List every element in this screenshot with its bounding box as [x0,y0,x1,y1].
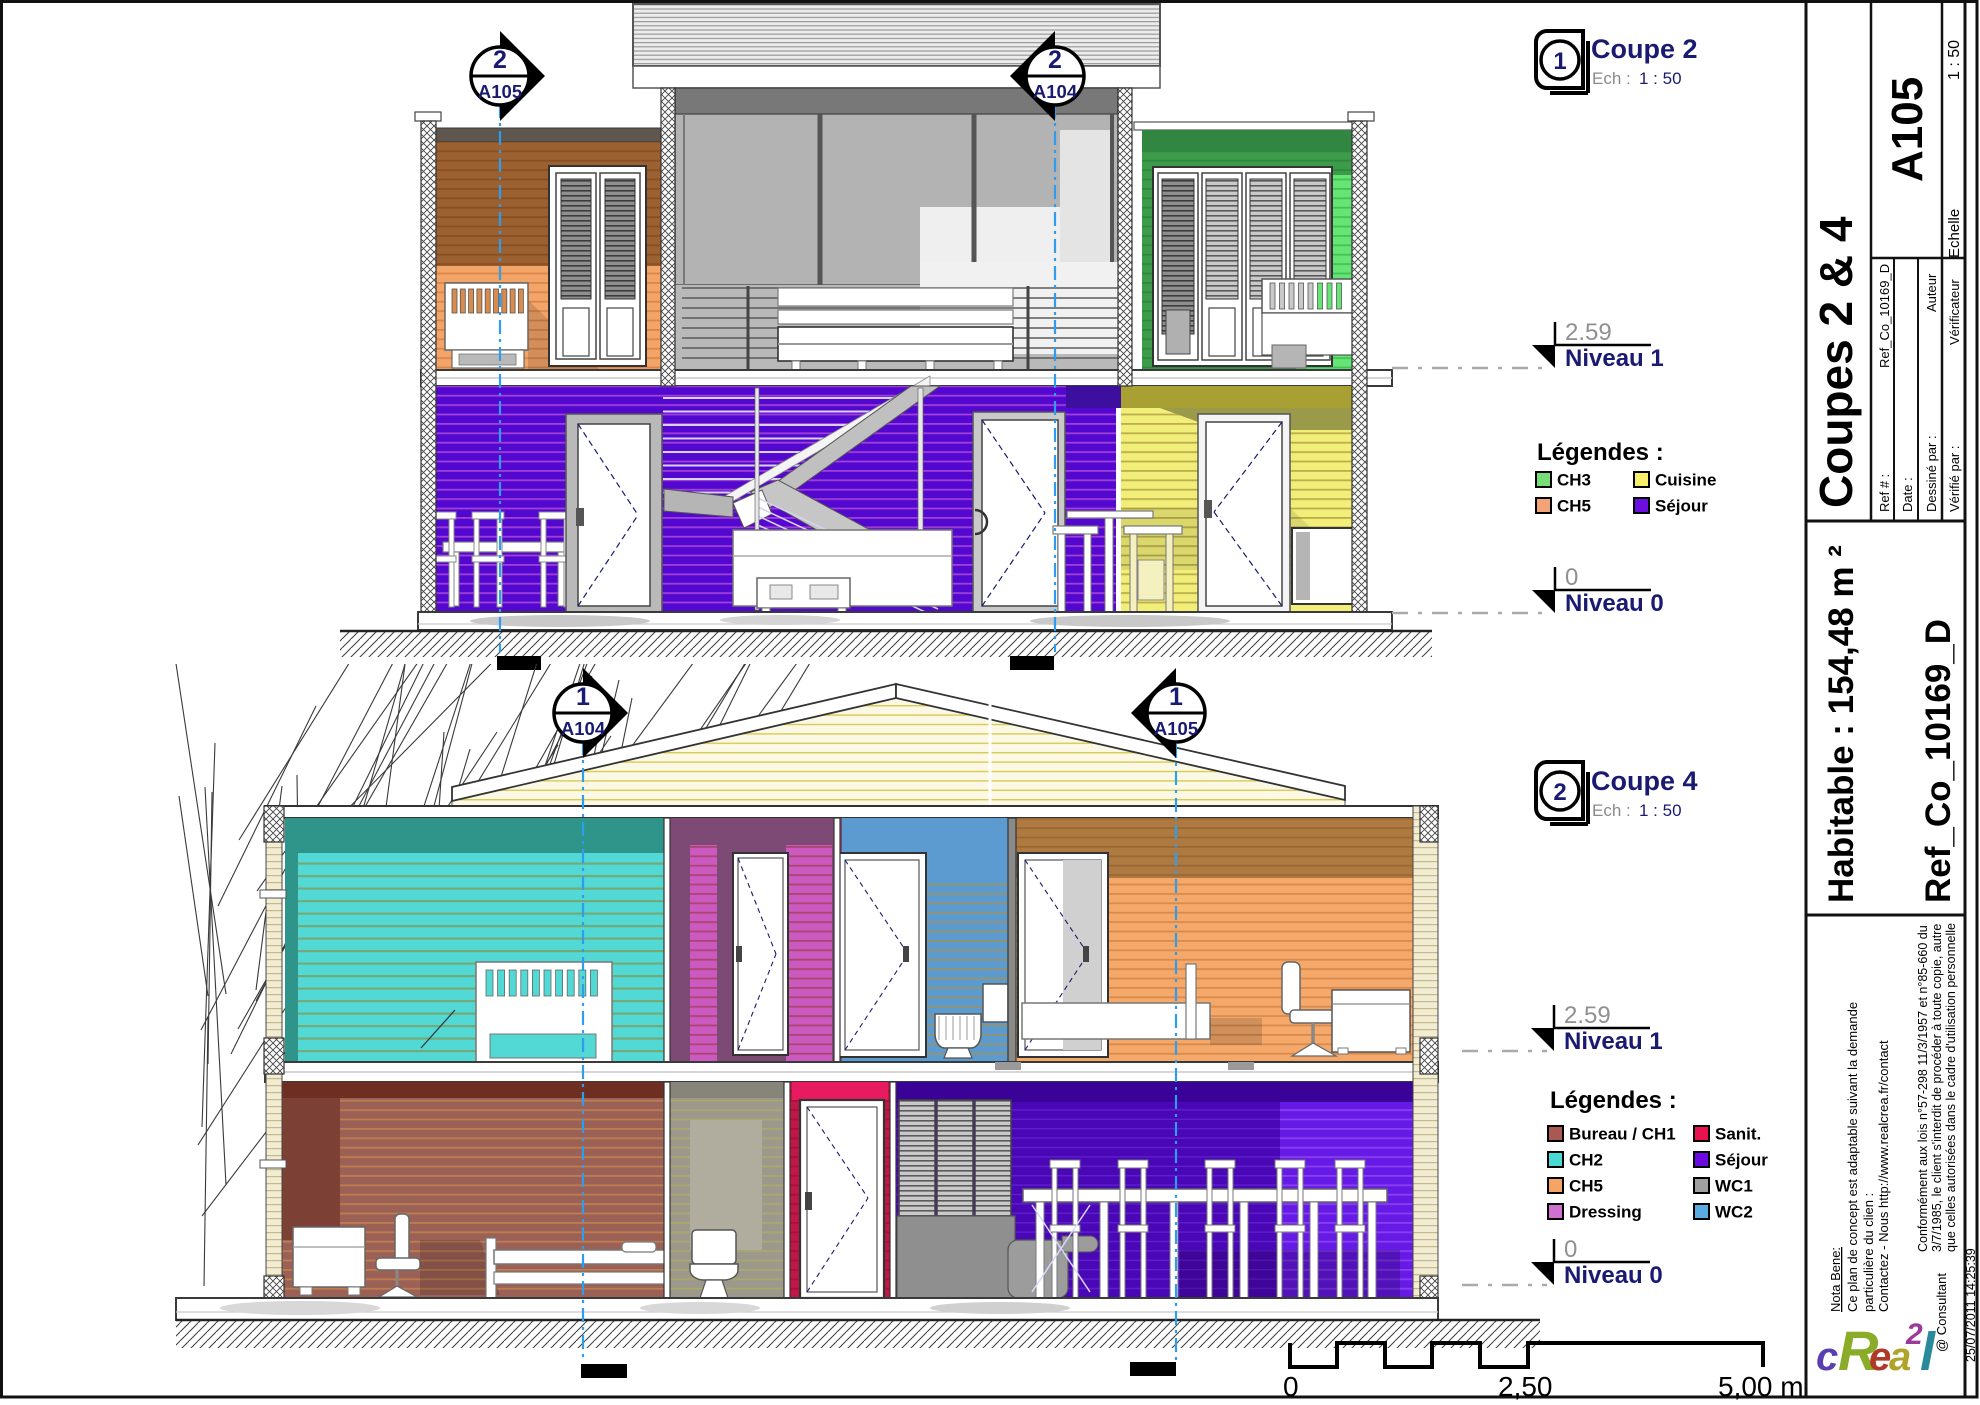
svg-text:Bureau / CH1: Bureau / CH1 [1569,1125,1676,1144]
svg-text:Niveau 1: Niveau 1 [1564,1028,1663,1055]
svg-text:Echelle: Echelle [1946,209,1963,258]
svg-text:Habitable : 154,48 m ²: Habitable : 154,48 m ² [1822,545,1861,903]
svg-text:CH2: CH2 [1569,1151,1603,1170]
svg-text:Ref_Co_10169_D: Ref_Co_10169_D [1877,264,1892,368]
svg-text:0: 0 [1565,564,1578,591]
svg-text:Auteur: Auteur [1924,273,1939,312]
svg-text:1: 1 [576,683,590,711]
svg-text:A104: A104 [561,718,606,739]
svg-text:A104: A104 [1033,81,1078,102]
svg-text:Séjour: Séjour [1715,1151,1768,1170]
svg-text:A105: A105 [478,81,522,102]
svg-text:l: l [1920,1322,1936,1382]
svg-text:2.59: 2.59 [1565,319,1612,346]
svg-text:Vérificateur: Vérificateur [1947,279,1962,345]
svg-text:Séjour: Séjour [1655,497,1708,516]
svg-text:WC2: WC2 [1715,1203,1753,1222]
svg-text:Niveau 1: Niveau 1 [1565,345,1664,372]
svg-text:2,50: 2,50 [1498,1371,1553,1400]
svg-text:Conformément aux lois n°57-298: Conformément aux lois n°57-298 11/3/1957… [1916,925,1930,1252]
svg-text:3/7/1985, le client s'interdit: 3/7/1985, le client s'interdit de procéd… [1930,924,1944,1252]
svg-text:Coupes 2 & 4: Coupes 2 & 4 [1810,216,1862,508]
svg-text:CH5: CH5 [1569,1177,1603,1196]
svg-text:Ech :: Ech : [1592,801,1631,820]
svg-text:25/07/2011 14:25:39: 25/07/2011 14:25:39 [1964,1248,1978,1362]
svg-text:2: 2 [1048,46,1062,74]
svg-text:que celles autorisées dans le: que celles autorisées dans le cadre d'ut… [1944,923,1958,1252]
svg-text:0: 0 [1283,1371,1299,1400]
svg-text:2.59: 2.59 [1564,1002,1611,1029]
svg-text:Niveau 0: Niveau 0 [1565,590,1664,617]
svg-text:Cuisine: Cuisine [1655,471,1716,490]
svg-text:2: 2 [493,46,507,74]
svg-text:e: e [1869,1335,1891,1379]
svg-text:Légendes :: Légendes : [1550,1087,1677,1114]
svg-text:Ce plan de concept est adaptab: Ce plan de concept est adaptable suivant… [1845,1002,1860,1312]
svg-text:@ Consultant: @ Consultant [1934,1273,1949,1352]
svg-text:A105: A105 [1154,718,1198,739]
svg-text:Vérifié par :: Vérifié par : [1947,446,1962,512]
svg-text:5,00 m: 5,00 m [1718,1371,1804,1400]
svg-text:c: c [1816,1335,1838,1379]
svg-text:Dressing: Dressing [1569,1203,1642,1222]
svg-text:Dessiné par :: Dessiné par : [1924,435,1939,512]
svg-text:Légendes :: Légendes : [1537,439,1664,466]
svg-text:1: 1 [1169,683,1183,711]
svg-text:1 : 50: 1 : 50 [1639,801,1682,820]
svg-text:0: 0 [1564,1236,1577,1263]
svg-text:Date :: Date : [1900,477,1915,512]
svg-text:Sanit.: Sanit. [1715,1125,1761,1144]
svg-text:Ech :: Ech : [1592,69,1631,88]
svg-text:Niveau 0: Niveau 0 [1564,1262,1663,1289]
svg-text:Contactez - Nous http://www.re: Contactez - Nous http://www.realcrea.fr/… [1876,1040,1891,1312]
svg-text:CH5: CH5 [1557,497,1591,516]
svg-text:WC1: WC1 [1715,1177,1753,1196]
svg-text:Nota Bene:: Nota Bene: [1828,1247,1843,1312]
svg-text:1 : 50: 1 : 50 [1946,40,1963,80]
svg-text:Ref # :: Ref # : [1877,474,1892,512]
svg-text:A105: A105 [1883,77,1932,182]
svg-text:particulière du clien :: particulière du clien : [1861,1193,1876,1312]
svg-text:1: 1 [1553,48,1566,75]
svg-text:CH3: CH3 [1557,471,1591,490]
svg-text:1 : 50: 1 : 50 [1639,69,1682,88]
svg-text:2: 2 [1553,779,1566,806]
svg-text:Coupe 4: Coupe 4 [1591,766,1698,796]
svg-text:Ref_Co_10169_D: Ref_Co_10169_D [1919,619,1958,903]
svg-text:Coupe 2: Coupe 2 [1591,34,1698,64]
